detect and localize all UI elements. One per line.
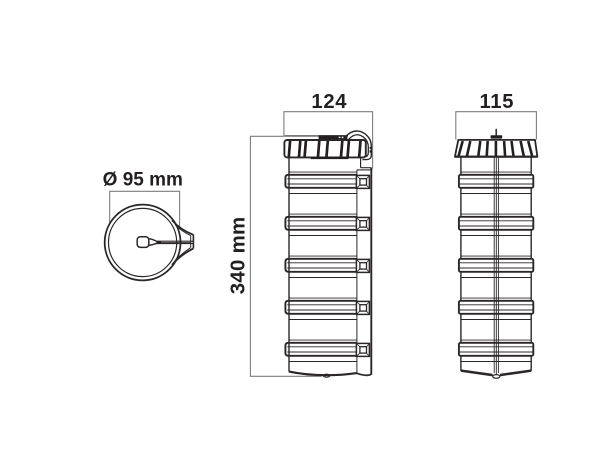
svg-text:340 mm: 340 mm xyxy=(227,217,249,295)
svg-text:115: 115 xyxy=(479,91,514,113)
svg-text:124: 124 xyxy=(311,91,347,113)
svg-text:Ø 95 mm: Ø 95 mm xyxy=(103,169,183,190)
